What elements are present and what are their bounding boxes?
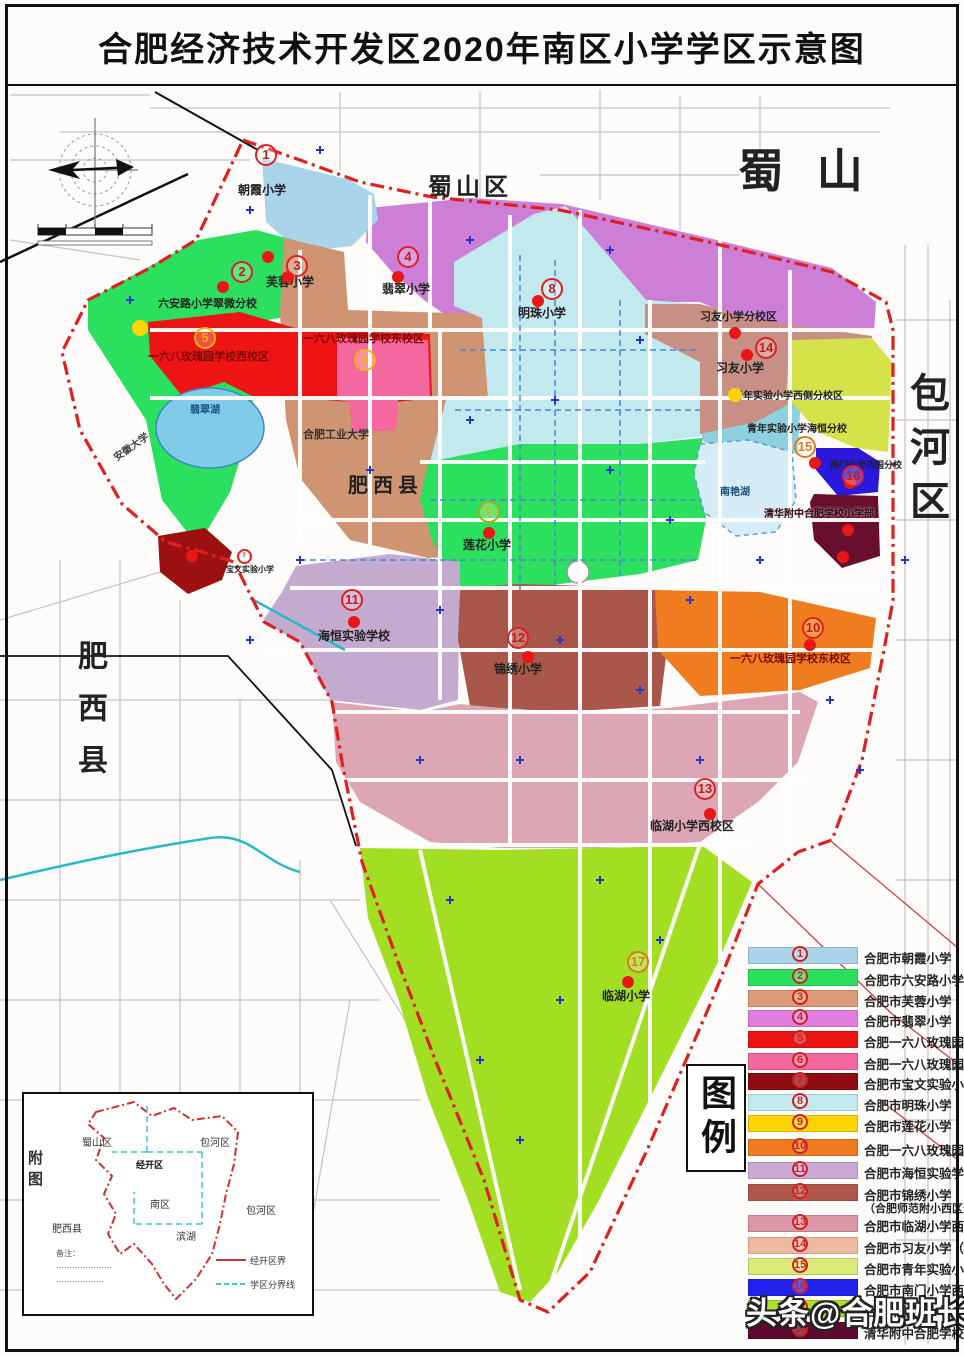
district-number-badge-12: 12 <box>507 627 529 649</box>
school-label: 一六八玫瑰园学校西校区 <box>148 352 269 363</box>
school-site-dot <box>622 976 634 988</box>
district-number-badge-6: 6 <box>354 349 376 371</box>
school-label: 清华附中合肥学校小学部 <box>764 510 874 520</box>
district-label-feixi-center: 肥西县 <box>348 476 423 496</box>
school-site-dot <box>522 651 534 663</box>
district-number-badge-11: 11 <box>341 589 363 611</box>
compass-icon <box>48 118 138 226</box>
school-label: 明珠小学 <box>518 307 566 319</box>
school-label: 锦绣小学 <box>494 663 542 675</box>
district-label-baohe: 包河区 <box>906 372 946 534</box>
yellow-site-marker <box>728 388 742 402</box>
district-label-shushan: 蜀山区 <box>428 176 512 200</box>
district-number-badge-15: 15 <box>794 436 816 458</box>
school-site-dot <box>217 281 229 293</box>
school-label: 临湖小学 <box>602 990 650 1002</box>
scale-bar <box>38 224 152 245</box>
school-label: 习友小学分校区 <box>700 312 777 323</box>
inset-note-2: ⋯⋯⋯⋯⋯⋯⋯ <box>56 1263 112 1272</box>
streams <box>0 598 345 880</box>
school-label: 六安路小学翠微分校 <box>158 299 257 310</box>
district-number-badge-3: 3 <box>286 255 308 277</box>
district-number-badge-10: 10 <box>802 617 824 639</box>
inset-label-jingkai: 经开区 <box>136 1159 163 1170</box>
school-label: 海恒实验学校 <box>318 630 390 642</box>
school-site-dot <box>804 639 816 651</box>
region-13-linhu-west <box>332 692 818 848</box>
district-number-badge-7: 7 <box>237 549 252 564</box>
title-divider <box>8 84 956 86</box>
district-number-badge-16: 16 <box>842 465 864 487</box>
school-label: 翡翠小学 <box>382 283 430 295</box>
inset-label-baohe-se: 包河区 <box>246 1204 276 1217</box>
district-number-badge-8: 8 <box>541 278 563 300</box>
district-number-badge-14: 14 <box>755 337 777 359</box>
school-site-dot <box>186 550 198 562</box>
school-site-dot <box>483 527 495 539</box>
school-label: 宝文实验小学 <box>226 566 274 574</box>
school-label: 南门小学西园分校 <box>830 461 902 470</box>
inset-label-feixi: 肥西县 <box>52 1223 82 1235</box>
school-label: 青年实验小学海恒分校 <box>747 425 847 435</box>
watermark: 头条@合肥班长 <box>746 1288 964 1333</box>
school-site-dot <box>741 349 753 361</box>
school-label: 一六八玫瑰园学校东校区 <box>303 334 424 345</box>
inset-note-1: 备注： <box>56 1248 80 1258</box>
legend-title: 图例 <box>690 1074 742 1162</box>
school-label: 一六八玫瑰园学校东校区 <box>730 654 851 665</box>
inset-note-3: ⋯⋯⋯⋯⋯⋯ <box>56 1277 104 1286</box>
inset-label-nanqu: 南区 <box>150 1198 170 1211</box>
school-site-dot <box>842 524 854 536</box>
school-site-dot <box>729 327 741 339</box>
school-label: 翡翠湖 <box>190 406 220 416</box>
district-label-shushan-large: 蜀 山 <box>738 148 873 194</box>
district-number-badge-5: 5 <box>194 327 216 349</box>
inset-label-shushan: 蜀山区 <box>82 1137 112 1149</box>
school-label: 莲花小学 <box>463 539 511 551</box>
school-site-dot <box>704 808 716 820</box>
school-label: 青年实验小学西侧分校区 <box>733 392 843 402</box>
inset-legend-red-label: 经开区界 <box>250 1255 286 1266</box>
page-title: 合肥经济技术开发区2020年南区小学学区示意图 <box>0 22 964 71</box>
school-site-dot <box>392 271 404 283</box>
school-label: 临湖小学西校区 <box>650 820 734 832</box>
yellow-site-marker <box>132 320 148 336</box>
district-number-badge-2: 2 <box>231 261 253 283</box>
inset-label-baohe-ne: 包河区 <box>200 1136 230 1149</box>
district-number-badge-1: 1 <box>255 144 277 166</box>
map-page: 合肥经济技术开发区2020年南区小学学区示意图 蜀山区 蜀 山 包河区 肥西县 … <box>0 0 964 1356</box>
school-label: 南艳湖 <box>720 488 750 498</box>
school-label: 合肥工业大学 <box>303 430 369 441</box>
district-number-badge-13: 13 <box>694 778 716 800</box>
district-number-badge-17: 17 <box>627 951 649 973</box>
district-number-badge-9: 9 <box>478 501 500 523</box>
district-label-feixi-west: 肥西县 <box>74 640 104 796</box>
inset-legend-cyan-label: 学区分界线 <box>250 1279 295 1290</box>
inset-locator-map: 蜀山区 包河区 经开区 南区 包河区 肥西县 滨湖 备注： ⋯⋯⋯⋯⋯⋯⋯ ⋯⋯… <box>22 1092 314 1316</box>
school-site-dot <box>262 251 274 263</box>
school-site-dot <box>348 616 360 628</box>
school-site-dot <box>809 457 821 469</box>
legend-title-box: 图例 <box>686 1064 746 1172</box>
inset-side-label: 附图 <box>24 1150 45 1192</box>
region-10-meiguiyuan-east <box>655 590 876 696</box>
school-site-dot <box>532 295 544 307</box>
inset-label-binhu: 滨湖 <box>176 1230 196 1243</box>
district-number-badge-4: 4 <box>397 246 419 268</box>
school-label: 习友小学 <box>716 362 764 374</box>
school-label: 朝霞小学 <box>238 184 286 196</box>
school-site-dot <box>837 551 849 563</box>
